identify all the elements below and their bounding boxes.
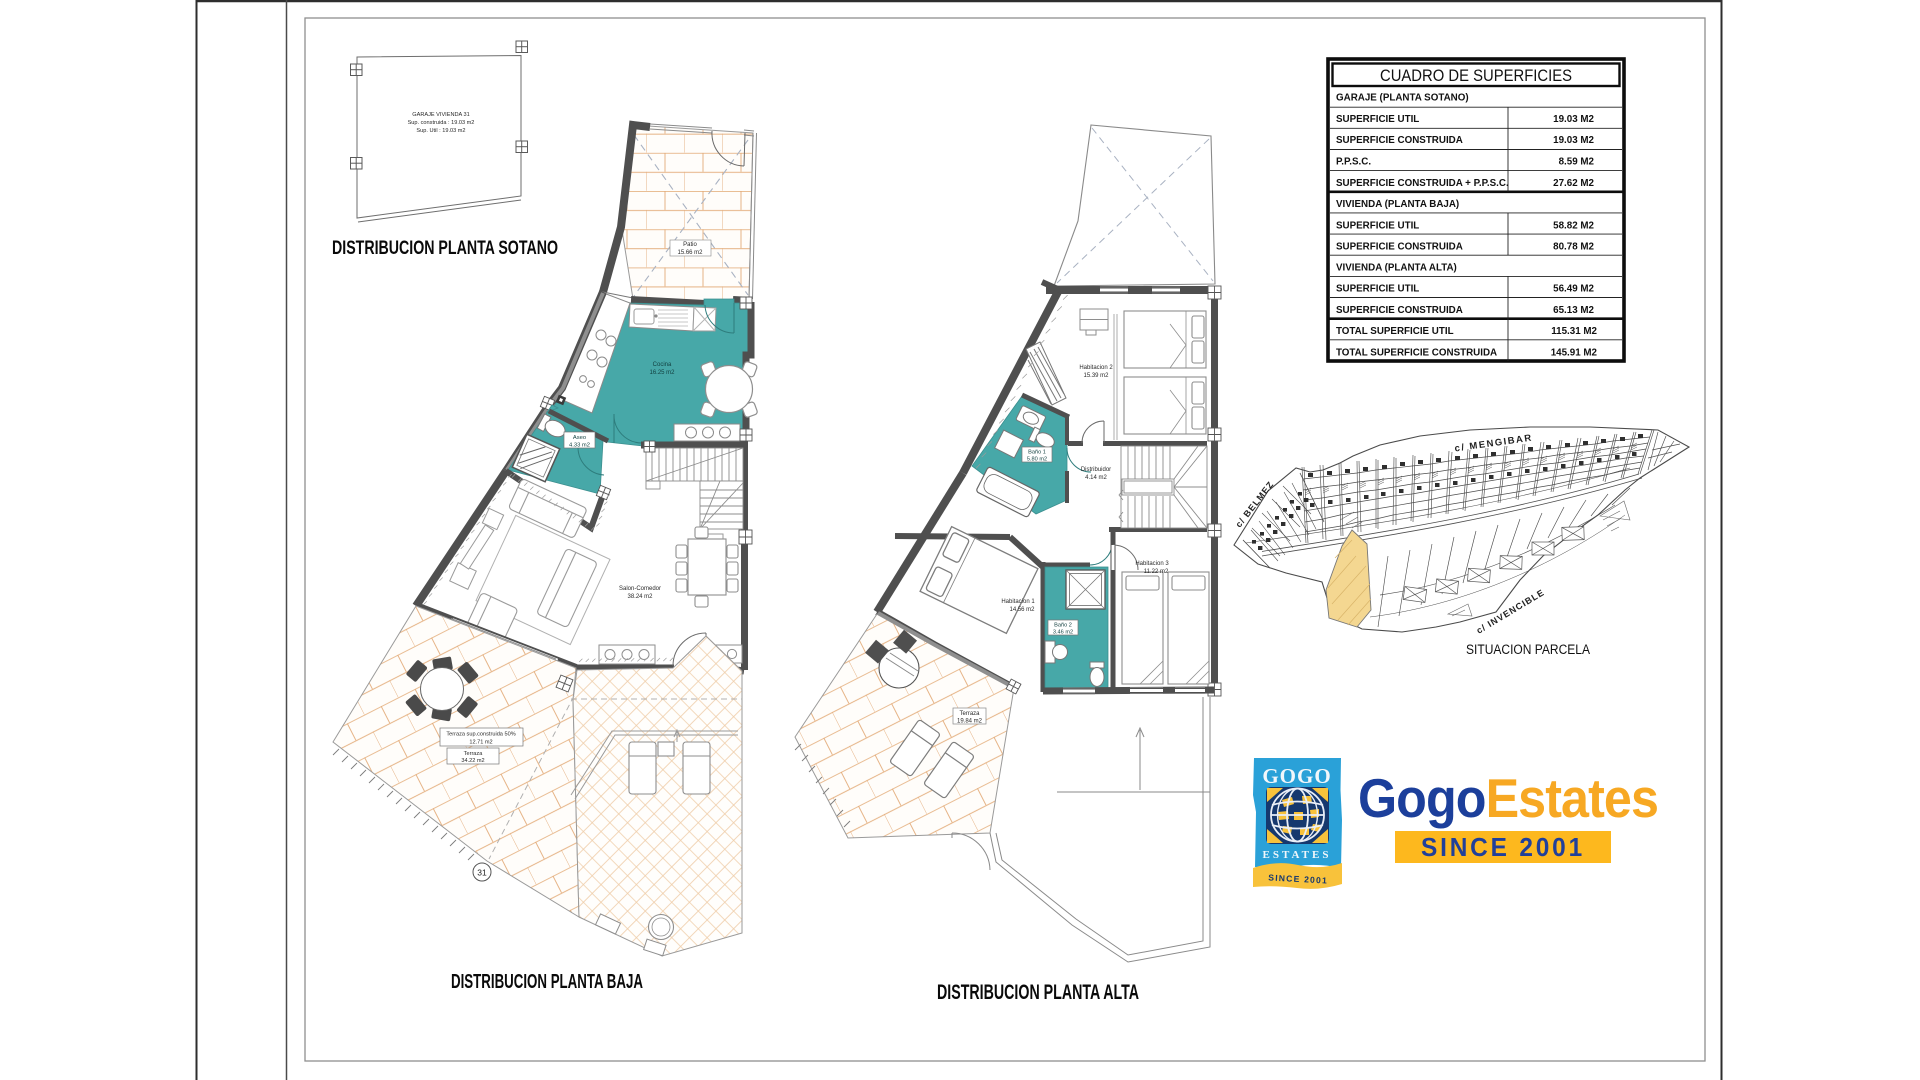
svg-text:Habitacion 3: Habitacion 3	[1135, 561, 1169, 567]
svg-text:SUPERFICIE UTIL: SUPERFICIE UTIL	[1336, 221, 1419, 232]
svg-text:16.25 m2: 16.25 m2	[649, 370, 675, 376]
svg-text:Terraza: Terraza	[464, 751, 484, 757]
svg-text:TOTAL SUPERFICIE CONSTRUIDA: TOTAL SUPERFICIE CONSTRUIDA	[1336, 347, 1497, 358]
svg-text:34.22 m2: 34.22 m2	[461, 758, 484, 764]
svg-text:Aseo: Aseo	[573, 435, 586, 441]
svg-text:VIVIENDA (PLANTA BAJA): VIVIENDA (PLANTA BAJA)	[1336, 199, 1459, 210]
svg-text:Baño 2: Baño 2	[1054, 623, 1072, 629]
svg-text:27.62 M2: 27.62 M2	[1553, 178, 1594, 189]
svg-text:P.P.S.C.: P.P.S.C.	[1336, 157, 1371, 168]
svg-text:Salon-Comedor: Salon-Comedor	[619, 586, 661, 592]
svg-text:Sup. construida : 19.03 m2: Sup. construida : 19.03 m2	[408, 120, 475, 126]
svg-text:GogoEstates: GogoEstates	[1358, 767, 1658, 829]
svg-text:31: 31	[477, 868, 487, 878]
svg-text:GARAJE (PLANTA SOTANO): GARAJE (PLANTA SOTANO)	[1336, 93, 1469, 104]
svg-text:8.59 M2: 8.59 M2	[1559, 157, 1595, 168]
svg-text:12.71 m2: 12.71 m2	[469, 740, 492, 746]
svg-text:4.33 m2: 4.33 m2	[569, 443, 590, 449]
svg-text:DISTRIBUCION PLANTA ALTA: DISTRIBUCION PLANTA ALTA	[937, 981, 1139, 1004]
svg-text:11.22 m2: 11.22 m2	[1144, 569, 1169, 575]
svg-text:TOTAL SUPERFICIE UTIL: TOTAL SUPERFICIE UTIL	[1336, 326, 1454, 337]
svg-text:80.78 M2: 80.78 M2	[1553, 242, 1594, 253]
svg-text:56.49 M2: 56.49 M2	[1553, 284, 1594, 295]
svg-text:DISTRIBUCION PLANTA BAJA: DISTRIBUCION PLANTA BAJA	[451, 970, 643, 993]
svg-text:65.13 M2: 65.13 M2	[1553, 305, 1594, 316]
svg-text:SUPERFICIE CONSTRUIDA: SUPERFICIE CONSTRUIDA	[1336, 305, 1463, 316]
svg-text:58.82 M2: 58.82 M2	[1553, 221, 1594, 232]
svg-text:145.91 M2: 145.91 M2	[1551, 347, 1598, 358]
svg-text:4.14 m2: 4.14 m2	[1085, 475, 1107, 481]
svg-text:SUPERFICIE CONSTRUIDA: SUPERFICIE CONSTRUIDA	[1336, 242, 1463, 253]
svg-text:5.80 m2: 5.80 m2	[1027, 457, 1047, 463]
svg-text:Terraza sup.construida 50%: Terraza sup.construida 50%	[446, 732, 515, 738]
svg-text:VIVIENDA (PLANTA ALTA): VIVIENDA (PLANTA ALTA)	[1336, 263, 1457, 274]
svg-text:SUPERFICIE CONSTRUIDA: SUPERFICIE CONSTRUIDA	[1336, 135, 1463, 146]
svg-text:Habitacion 1: Habitacion 1	[1001, 599, 1035, 605]
svg-text:19.03 M2: 19.03 M2	[1553, 135, 1594, 146]
svg-text:Sup. Util : 19.03 m2: Sup. Util : 19.03 m2	[416, 128, 465, 134]
svg-text:15.39 m2: 15.39 m2	[1083, 373, 1109, 379]
svg-text:3.46 m2: 3.46 m2	[1053, 630, 1073, 636]
svg-text:SUPERFICIE UTIL: SUPERFICIE UTIL	[1336, 114, 1419, 125]
svg-text:19.03 M2: 19.03 M2	[1553, 114, 1594, 125]
svg-text:SINCE 2001: SINCE 2001	[1421, 832, 1585, 862]
svg-text:CUADRO DE SUPERFICIES: CUADRO DE SUPERFICIES	[1380, 67, 1572, 85]
svg-text:19.84 m2: 19.84 m2	[957, 719, 983, 725]
svg-text:GOGO: GOGO	[1262, 764, 1331, 788]
svg-text:Habitacion 2: Habitacion 2	[1079, 365, 1113, 371]
svg-text:15.66 m2: 15.66 m2	[677, 250, 703, 256]
svg-text:ESTATES: ESTATES	[1263, 849, 1332, 861]
svg-text:38.24 m2: 38.24 m2	[627, 594, 653, 600]
svg-text:Cocina: Cocina	[653, 362, 672, 368]
svg-text:Terraza: Terraza	[959, 711, 980, 717]
svg-text:Distribuidor: Distribuidor	[1081, 467, 1111, 473]
svg-text:SUPERFICIE CONSTRUIDA + P.P.S.: SUPERFICIE CONSTRUIDA + P.P.S.C.	[1336, 178, 1509, 189]
svg-text:115.31 M2: 115.31 M2	[1551, 326, 1597, 337]
svg-text:DISTRIBUCION PLANTA SOTANO: DISTRIBUCION PLANTA SOTANO	[332, 237, 558, 259]
svg-text:14.56 m2: 14.56 m2	[1009, 607, 1035, 613]
svg-text:Patio: Patio	[683, 242, 697, 248]
svg-text:Baño 1: Baño 1	[1028, 450, 1046, 456]
svg-text:SITUACION PARCELA: SITUACION PARCELA	[1466, 642, 1590, 657]
svg-text:GARAJE VIVIENDA 31: GARAJE VIVIENDA 31	[412, 112, 470, 118]
svg-text:SUPERFICIE UTIL: SUPERFICIE UTIL	[1336, 284, 1419, 295]
